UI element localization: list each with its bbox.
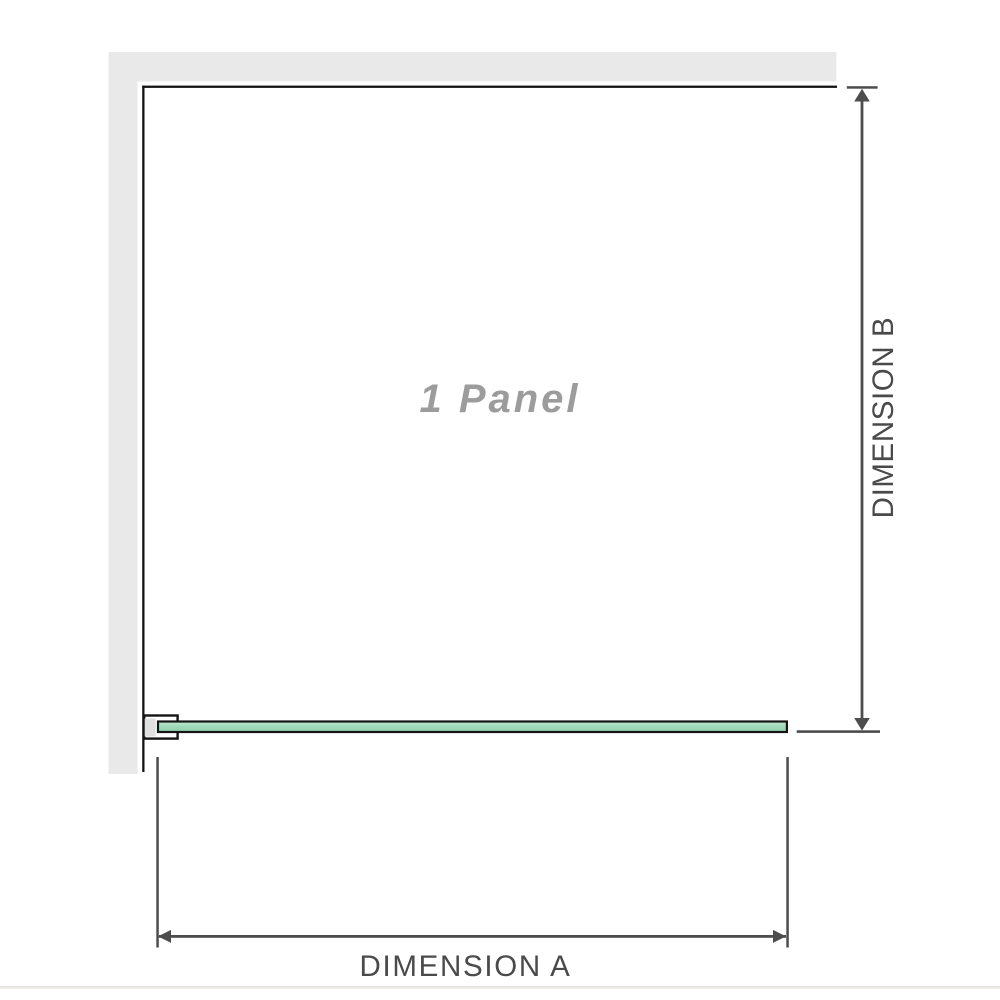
- svg-text:1 Panel: 1 Panel: [419, 377, 580, 421]
- svg-text:DIMENSION B: DIMENSION B: [867, 317, 900, 519]
- svg-text:DIMENSION A: DIMENSION A: [359, 950, 571, 983]
